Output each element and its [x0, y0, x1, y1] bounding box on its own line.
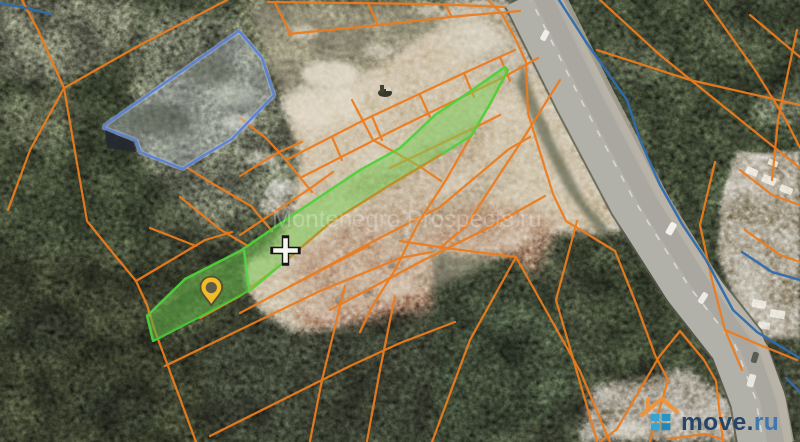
svg-text:Montenegro Prospects.ru: Montenegro Prospects.ru	[272, 206, 541, 233]
svg-text:move.ru: move.ru	[681, 409, 779, 436]
